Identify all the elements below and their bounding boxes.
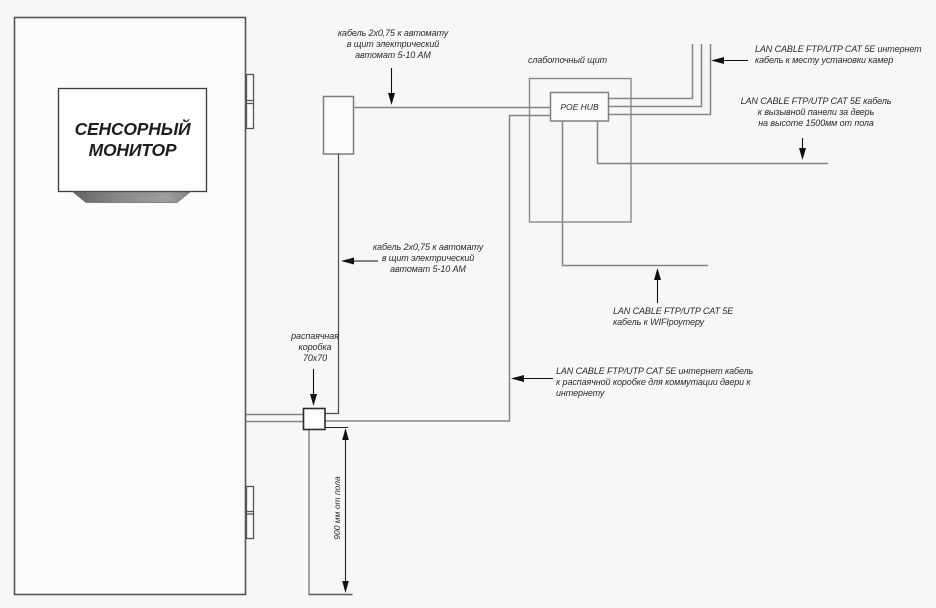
door-hinge-top — [247, 75, 254, 129]
poe-hub-label: POE HUB — [550, 92, 609, 121]
annotation-lan-cameras: LAN CABLE FTP/UTP CAT 5E интернет кабель… — [755, 44, 930, 66]
monitor-stand — [73, 192, 190, 203]
wiring-diagram: СЕНСОРНЫЙ МОНИТОР кабель 2х0,75 к автома… — [0, 0, 936, 608]
junction-box — [304, 409, 326, 430]
dimension-arrow-down — [342, 581, 349, 593]
annotation-power-cable-top: кабель 2х0,75 к автомату в щит электриче… — [323, 28, 463, 61]
arrow-lan-cameras — [711, 57, 748, 64]
monitor-label: СЕНСОРНЫЙ МОНИТОР — [58, 88, 207, 192]
arrow-junction-box — [310, 369, 317, 406]
arrow-lan-door-panel — [799, 138, 806, 160]
annotation-lan-door-panel: LAN CABLE FTP/UTP CAT 5E кабель к вызывн… — [736, 96, 896, 129]
automat-box — [324, 97, 354, 155]
arrow-lan-wifi — [654, 268, 661, 303]
annotation-lan-wifi: LAN CABLE FTP/UTP CAT 5E кабель к WIFIро… — [613, 306, 743, 328]
camera-cable-2 — [609, 44, 702, 107]
dimension-arrow-up — [342, 428, 349, 440]
camera-cable-3 — [609, 44, 711, 115]
dimension-label: 900 мм от пола — [332, 476, 342, 539]
door-hinge-bottom — [247, 487, 254, 539]
arrow-power-top — [388, 68, 395, 105]
wifi-cable — [563, 121, 709, 266]
panel-label: слаботочный щит — [528, 55, 607, 66]
annotation-power-cable-mid: кабель 2х0,75 к автомату в щит электриче… — [363, 242, 493, 275]
arrow-lan-junction — [511, 375, 553, 382]
annotation-junction-box: распаячная коробка 70х70 — [280, 331, 350, 364]
camera-cable-1 — [609, 44, 693, 99]
annotation-lan-junction: LAN CABLE FTP/UTP CAT 5E интернет кабель… — [556, 366, 796, 399]
power-cable-vertical — [326, 154, 339, 414]
